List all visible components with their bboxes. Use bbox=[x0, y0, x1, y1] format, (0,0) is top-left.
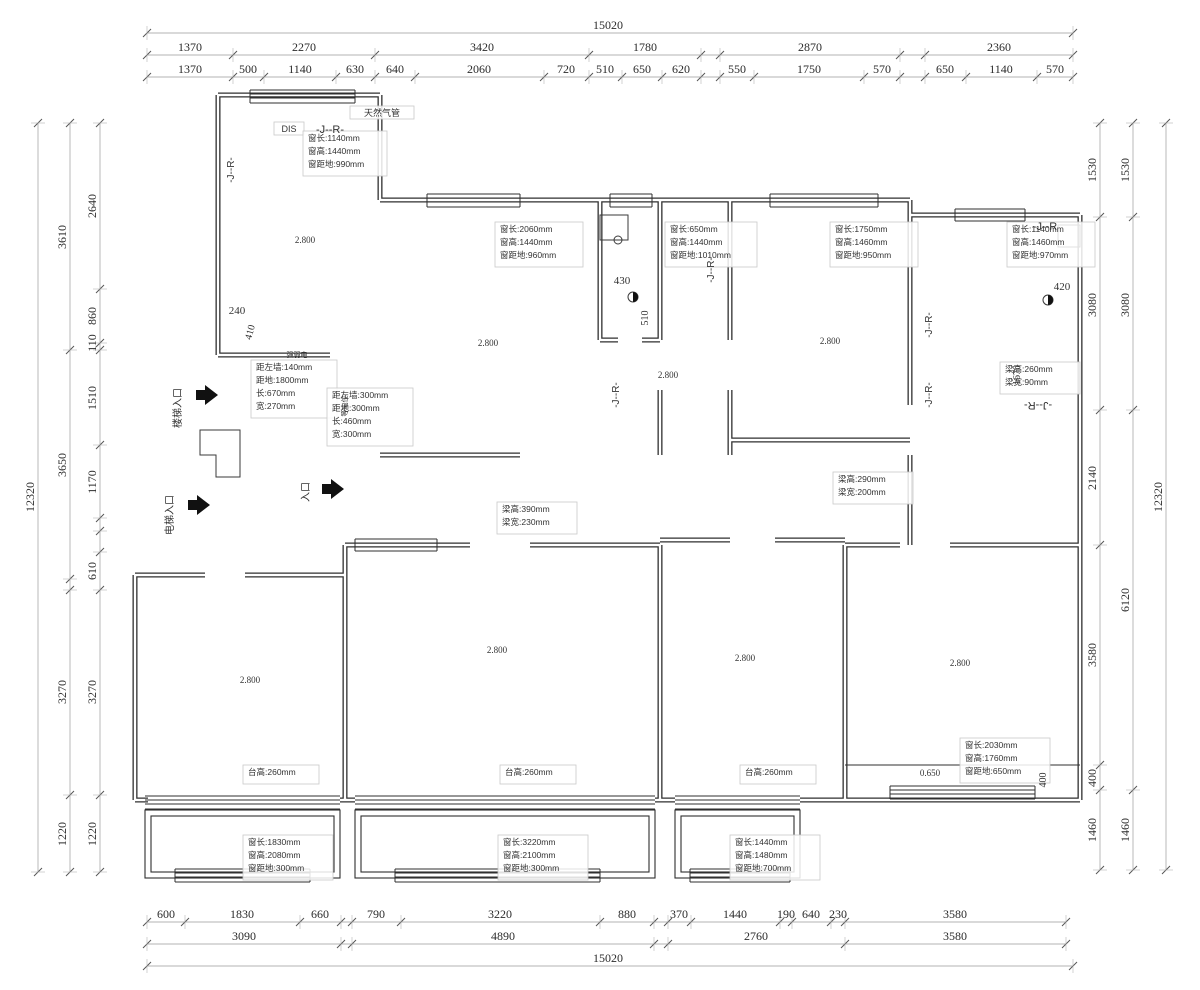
spec-block: 台高:260mm bbox=[500, 765, 576, 784]
annotation-layer: 窗长:1140mm窗高:1440mm窗距地:990mm窗长:2060mm窗高:1… bbox=[163, 107, 1095, 880]
dim-label: 640 bbox=[386, 62, 404, 76]
spec-text: 梁宽:200mm bbox=[838, 487, 886, 497]
plan-label: 1670 bbox=[1012, 365, 1023, 385]
plan-label: 410 bbox=[243, 324, 258, 341]
spec-text: 窗高:2080mm bbox=[248, 850, 300, 860]
dim-label: 2760 bbox=[744, 929, 768, 943]
plan-label: -J--R- bbox=[924, 312, 935, 338]
spec-text: 窗长:650mm bbox=[670, 224, 718, 234]
plan-label: 强弱电 bbox=[287, 350, 308, 359]
window-hatch bbox=[145, 796, 340, 809]
plan-label: 电梯入口 bbox=[163, 495, 176, 535]
dim-label: 650 bbox=[633, 62, 651, 76]
spec-block: 窗长:1140mm窗高:1440mm窗距地:990mm bbox=[303, 131, 387, 176]
spec-block: 窗长:2030mm窗高:1760mm窗距地:650mm bbox=[960, 738, 1050, 783]
dim-label: 630 bbox=[346, 62, 364, 76]
spec-text: 台高:260mm bbox=[505, 767, 553, 777]
dim-label: 1530 bbox=[1085, 158, 1099, 182]
spec-block: 窗长:1830mm窗高:2080mm窗距地:300mm bbox=[243, 835, 333, 880]
plan-label: 420 bbox=[1054, 281, 1071, 293]
floor-plan-canvas: 1502013702270342017802870236013705001140… bbox=[0, 0, 1200, 990]
dim-label: 1170 bbox=[85, 470, 99, 494]
dim-label: 400 bbox=[1085, 769, 1099, 787]
dim-label: 3580 bbox=[943, 929, 967, 943]
spec-text: 台高:260mm bbox=[248, 767, 296, 777]
dim-label: 600 bbox=[157, 907, 175, 921]
dim-label: 2360 bbox=[987, 40, 1011, 54]
dim-label: 660 bbox=[311, 907, 329, 921]
spec-text: 窗高:1480mm bbox=[735, 850, 787, 860]
spec-text: 窗距地:300mm bbox=[248, 863, 304, 873]
spec-text: 窗长:2030mm bbox=[965, 740, 1017, 750]
dimension-layer: 1502013702270342017802870236013705001140… bbox=[23, 18, 1173, 973]
dim-label: 15020 bbox=[593, 951, 623, 965]
dimension-row-bottom-minor: 6001830660790322088037014401906402303580 bbox=[143, 907, 1070, 929]
spec-block: 窗长:1440mm窗高:1480mm窗距地:700mm bbox=[730, 835, 820, 880]
dimension-row-top-total: 15020 bbox=[143, 18, 1077, 40]
dim-label: 2060 bbox=[467, 62, 491, 76]
dim-label: 1750 bbox=[797, 62, 821, 76]
plan-label: -J--R- bbox=[924, 382, 935, 408]
dim-label: 3220 bbox=[488, 907, 512, 921]
dim-label: 570 bbox=[873, 62, 891, 76]
spec-block: 台高:260mm bbox=[243, 765, 319, 784]
spec-block: 台高:260mm bbox=[740, 765, 816, 784]
window-hatch bbox=[890, 786, 1035, 799]
spec-text: 窗距地:1010mm bbox=[670, 250, 731, 260]
plan-label: 510 bbox=[640, 311, 651, 326]
dim-label: 3650 bbox=[55, 453, 69, 477]
dim-label: 3420 bbox=[470, 40, 494, 54]
spec-text: 距左墙:140mm bbox=[256, 362, 312, 372]
spec-text: 窗长:1440mm bbox=[735, 837, 787, 847]
spec-text: 长:670mm bbox=[256, 388, 295, 398]
spec-text: 梁高:390mm bbox=[502, 504, 550, 514]
plan-label: 2.800 bbox=[950, 658, 971, 668]
wall-lamp-icon bbox=[628, 292, 638, 302]
plan-label: -J--R- bbox=[226, 157, 237, 183]
dim-label: 3270 bbox=[85, 680, 99, 704]
entry-arrow-icon bbox=[196, 385, 218, 405]
plan-label: 等电位 bbox=[340, 396, 349, 417]
spec-text: 台高:260mm bbox=[745, 767, 793, 777]
spec-block: 距左墙:300mm距地:300mm长:460mm宽:300mm bbox=[327, 388, 413, 446]
dim-label: 1220 bbox=[55, 822, 69, 846]
dim-label: 1440 bbox=[723, 907, 747, 921]
spec-text: 窗距地:960mm bbox=[500, 250, 556, 260]
spec-text: 窗距地:990mm bbox=[308, 159, 364, 169]
dim-label: 3580 bbox=[1085, 643, 1099, 667]
floor-plan-page: 1502013702270342017802870236013705001140… bbox=[0, 0, 1200, 990]
dim-label: 860 bbox=[85, 307, 99, 325]
dim-label: 3080 bbox=[1118, 293, 1132, 317]
plan-label: -J--R- bbox=[316, 124, 344, 136]
dim-label: 1220 bbox=[85, 822, 99, 846]
spec-text: 窗高:1460mm bbox=[1012, 237, 1064, 247]
spec-text: 距地:300mm bbox=[332, 403, 380, 413]
dim-label: 3080 bbox=[1085, 293, 1099, 317]
plan-label: -J--R- bbox=[706, 257, 717, 283]
dim-label: 1830 bbox=[230, 907, 254, 921]
spec-text: 窗高:1440mm bbox=[308, 146, 360, 156]
plan-label: DIS bbox=[281, 124, 296, 134]
dim-label: 1530 bbox=[1118, 158, 1132, 182]
dim-label: 650 bbox=[936, 62, 954, 76]
dimension-row-bottom-total: 15020 bbox=[143, 951, 1077, 973]
dim-label: 230 bbox=[829, 907, 847, 921]
plan-label: 2.800 bbox=[487, 645, 508, 655]
spec-text: 宽:300mm bbox=[332, 429, 371, 439]
dim-label: 1140 bbox=[989, 62, 1013, 76]
plan-label: 2.800 bbox=[295, 235, 316, 245]
dim-label: 1460 bbox=[1085, 818, 1099, 842]
dim-label: 2870 bbox=[798, 40, 822, 54]
window-hatch bbox=[675, 796, 800, 809]
spec-text: 梁高:290mm bbox=[838, 474, 886, 484]
bath-fixture bbox=[600, 215, 628, 240]
dimension-row-right-major: 1530308061201460 bbox=[1118, 119, 1140, 874]
dim-label: 2640 bbox=[85, 194, 99, 218]
spec-text: 窗高:2100mm bbox=[503, 850, 555, 860]
plan-label: 240 bbox=[229, 305, 246, 317]
plan-label: -J--R bbox=[1033, 221, 1057, 233]
dim-label: 1510 bbox=[85, 386, 99, 410]
spec-block: 窗长:1750mm窗高:1460mm窗距地:950mm bbox=[830, 222, 918, 267]
spec-text: 梁宽:230mm bbox=[502, 517, 550, 527]
plan-label: 430 bbox=[614, 275, 631, 287]
spec-text: 窗高:1440mm bbox=[670, 237, 722, 247]
dimension-row-top-major: 137022703420178028702360 bbox=[143, 40, 1077, 62]
dimension-row-left-total: 12320 bbox=[23, 119, 45, 876]
wall-outline-core bbox=[135, 95, 1080, 800]
spec-block: 梁高:390mm梁宽:230mm bbox=[497, 502, 577, 534]
plan-label: -J--R- bbox=[611, 382, 622, 408]
plan-label: 2.800 bbox=[478, 338, 499, 348]
plan-label: 入口 bbox=[301, 482, 312, 502]
dim-label: 190 bbox=[777, 907, 795, 921]
dim-label: 110 bbox=[85, 334, 99, 352]
wall-lamp-icon bbox=[1043, 295, 1053, 305]
spec-text: 窗距地:970mm bbox=[1012, 250, 1068, 260]
dim-label: 4890 bbox=[491, 929, 515, 943]
spec-text: 宽:270mm bbox=[256, 401, 295, 411]
dim-label: 2140 bbox=[1085, 466, 1099, 490]
dim-label: 550 bbox=[728, 62, 746, 76]
dim-label: 720 bbox=[557, 62, 575, 76]
spec-text: 长:460mm bbox=[332, 416, 371, 426]
dim-label: 640 bbox=[802, 907, 820, 921]
plan-label: 2.800 bbox=[240, 675, 261, 685]
dim-label: 370 bbox=[670, 907, 688, 921]
dimension-row-bottom-major: 3090489027603580 bbox=[143, 929, 1070, 951]
spec-text: 窗高:1440mm bbox=[500, 237, 552, 247]
dim-label: 3090 bbox=[232, 929, 256, 943]
dim-label: 3610 bbox=[55, 225, 69, 249]
dim-label: 500 bbox=[239, 62, 257, 76]
dim-label: 1780 bbox=[633, 40, 657, 54]
stair-shaft bbox=[200, 430, 240, 477]
dim-label: 610 bbox=[85, 562, 99, 580]
spec-text: 距地:1800mm bbox=[256, 375, 308, 385]
dim-label: 790 bbox=[367, 907, 385, 921]
spec-text: 窗长:2060mm bbox=[500, 224, 552, 234]
dim-label: 3270 bbox=[55, 680, 69, 704]
dim-label: 510 bbox=[596, 62, 614, 76]
dimension-row-top-minor: 1370500114063064020607205106506205501750… bbox=[143, 62, 1077, 84]
spec-text: 窗距地:950mm bbox=[835, 250, 891, 260]
dim-label: 1370 bbox=[178, 62, 202, 76]
plan-label: 0.650 bbox=[920, 768, 941, 778]
plan-label: 400 bbox=[1038, 773, 1049, 788]
entry-arrow-icon bbox=[322, 479, 344, 499]
spec-text: 窗距地:300mm bbox=[503, 863, 559, 873]
spec-block: 窗长:3220mm窗高:2100mm窗距地:300mm bbox=[498, 835, 588, 880]
spec-block: 梁高:290mm梁宽:200mm bbox=[833, 472, 913, 504]
dim-label: 12320 bbox=[23, 482, 37, 512]
plan-label: 2.800 bbox=[820, 336, 841, 346]
window-hatch bbox=[355, 796, 655, 809]
spec-text: 窗长:3220mm bbox=[503, 837, 555, 847]
dim-label: 1140 bbox=[288, 62, 312, 76]
dim-label: 570 bbox=[1046, 62, 1064, 76]
dim-label: 1370 bbox=[178, 40, 202, 54]
dimension-row-right-total: 12320 bbox=[1151, 119, 1173, 874]
plan-label: 2.800 bbox=[735, 653, 756, 663]
plan-label: 天然气管 bbox=[364, 107, 400, 118]
spec-text: 窗长:1830mm bbox=[248, 837, 300, 847]
spec-text: 窗距地:650mm bbox=[965, 766, 1021, 776]
spec-text: 窗距地:700mm bbox=[735, 863, 791, 873]
spec-text: 距左墙:300mm bbox=[332, 390, 388, 400]
dim-label: 2270 bbox=[292, 40, 316, 54]
entry-arrow-icon bbox=[188, 495, 210, 515]
plan-label: 2.800 bbox=[658, 370, 679, 380]
spec-text: 窗高:1460mm bbox=[835, 237, 887, 247]
spec-text: 窗高:1760mm bbox=[965, 753, 1017, 763]
dim-label: 15020 bbox=[593, 18, 623, 32]
plan-label: -J--R- bbox=[1024, 399, 1052, 411]
spec-block: 窗长:2060mm窗高:1440mm窗距地:960mm bbox=[495, 222, 583, 267]
dim-label: 880 bbox=[618, 907, 636, 921]
dim-label: 1460 bbox=[1118, 818, 1132, 842]
plan-label: 楼梯入口 bbox=[171, 388, 184, 428]
walls-layer bbox=[135, 95, 1080, 878]
spec-block: 距左墙:140mm距地:1800mm长:670mm宽:270mm bbox=[251, 360, 337, 418]
dim-label: 620 bbox=[672, 62, 690, 76]
spec-text: 窗长:1750mm bbox=[835, 224, 887, 234]
dimension-row-left-minor: 26408601101510117061032701220 bbox=[85, 119, 107, 876]
dim-label: 6120 bbox=[1118, 588, 1132, 612]
dimension-row-left-major: 3610365032701220 bbox=[55, 119, 77, 876]
dim-label: 12320 bbox=[1151, 482, 1165, 512]
dim-label: 3580 bbox=[943, 907, 967, 921]
